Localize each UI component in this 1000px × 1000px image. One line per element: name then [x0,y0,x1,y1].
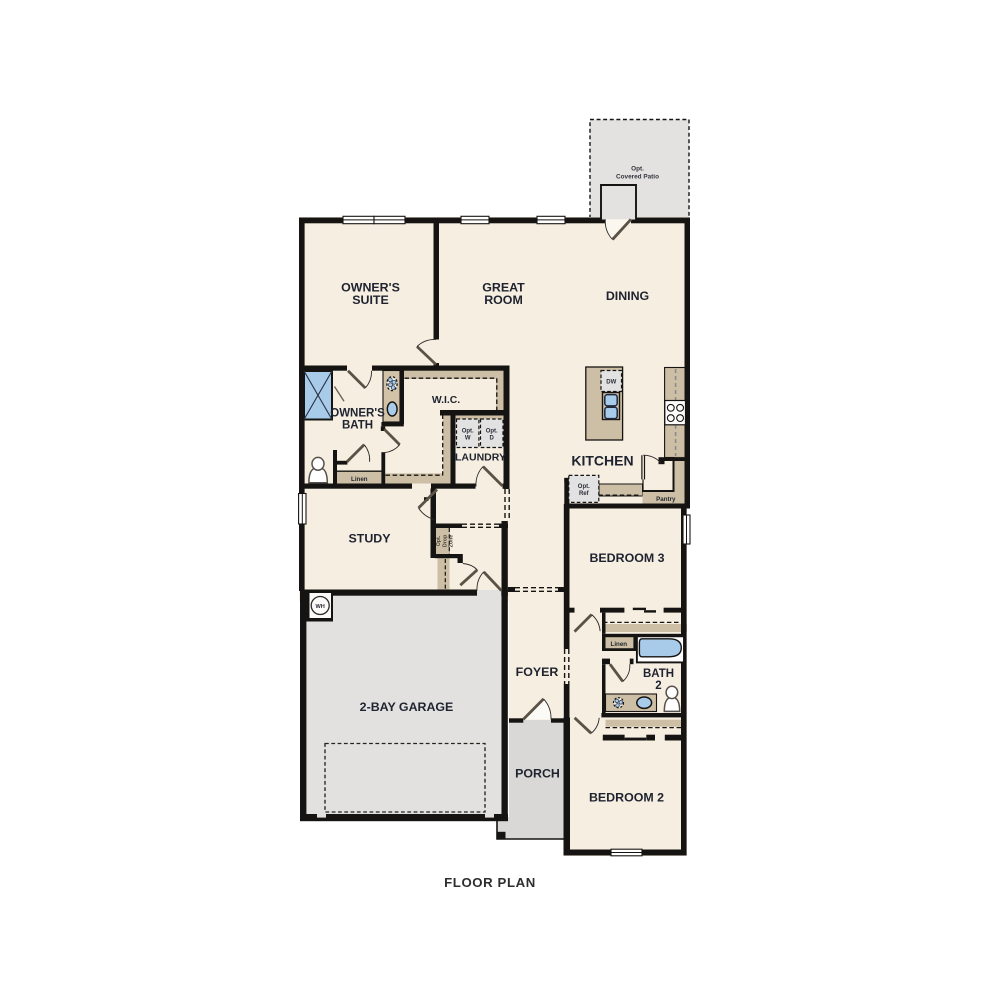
svg-text:Pantry: Pantry [656,496,676,503]
svg-text:D: D [490,436,495,442]
svg-text:Zone: Zone [449,535,455,548]
svg-text:FLOOR PLAN: FLOOR PLAN [444,875,536,890]
svg-text:Opt.: Opt. [462,429,474,435]
svg-text:Covered Patio: Covered Patio [616,174,659,181]
svg-text:Opt.: Opt. [631,166,644,173]
svg-text:OWNER'S: OWNER'S [330,408,385,420]
svg-text:DINING: DINING [606,289,649,303]
svg-text:PORCH: PORCH [515,767,560,781]
svg-text:BEDROOM 2: BEDROOM 2 [589,791,664,805]
svg-text:FOYER: FOYER [516,665,559,679]
svg-text:KITCHEN: KITCHEN [571,453,633,469]
svg-text:2: 2 [655,680,661,692]
svg-text:ROOM: ROOM [484,293,523,307]
svg-text:Linen: Linen [351,476,368,483]
svg-text:Opt.: Opt. [486,429,498,435]
svg-text:BATH: BATH [342,420,373,432]
svg-text:Opt.: Opt. [436,535,442,546]
svg-text:Ref: Ref [579,491,590,497]
svg-text:LAUNDRY: LAUNDRY [455,452,506,464]
svg-text:BEDROOM 3: BEDROOM 3 [589,551,664,565]
svg-text:WH: WH [316,604,325,610]
svg-text:Opt.: Opt. [578,484,590,490]
svg-text:BATH: BATH [643,668,674,680]
svg-text:Drop: Drop [442,534,448,547]
svg-text:2-BAY GARAGE: 2-BAY GARAGE [360,700,454,714]
svg-text:DW: DW [606,380,616,386]
svg-text:W.I.C.: W.I.C. [432,395,460,406]
svg-text:SUITE: SUITE [352,293,389,307]
svg-text:Linen: Linen [611,641,628,648]
svg-text:W: W [465,436,471,442]
svg-text:STUDY: STUDY [349,532,392,546]
